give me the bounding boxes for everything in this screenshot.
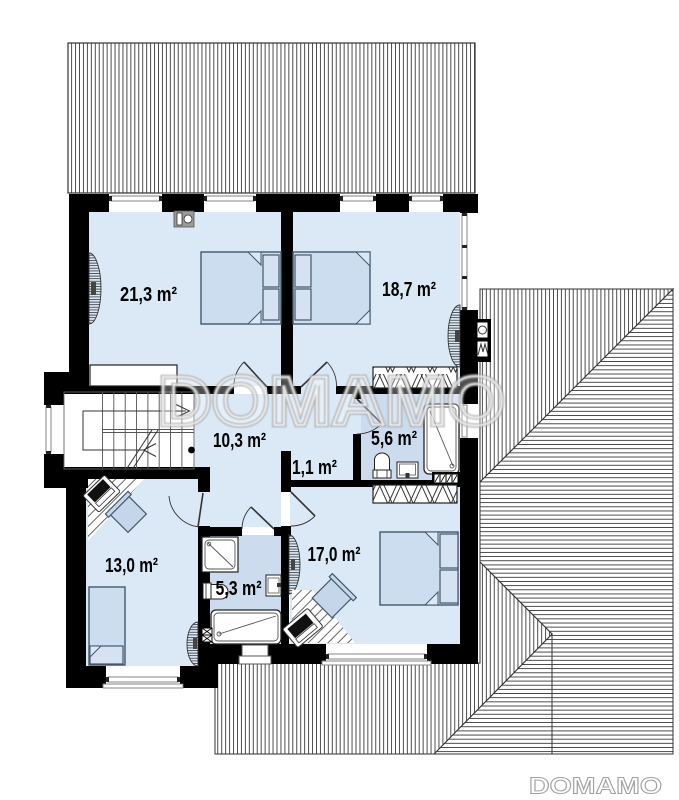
- svg-text:1,1 m²: 1,1 m²: [292, 457, 337, 479]
- svg-text:21,3 m²: 21,3 m²: [120, 284, 177, 306]
- svg-text:13,0 m²: 13,0 m²: [105, 555, 158, 577]
- svg-text:DOMAMO: DOMAMO: [529, 773, 662, 799]
- svg-text:5,3 m²: 5,3 m²: [216, 578, 262, 600]
- svg-text:DOMAMO: DOMAMO: [158, 362, 505, 440]
- svg-text:18,7 m²: 18,7 m²: [382, 279, 436, 301]
- svg-text:17,0 m²: 17,0 m²: [308, 544, 361, 566]
